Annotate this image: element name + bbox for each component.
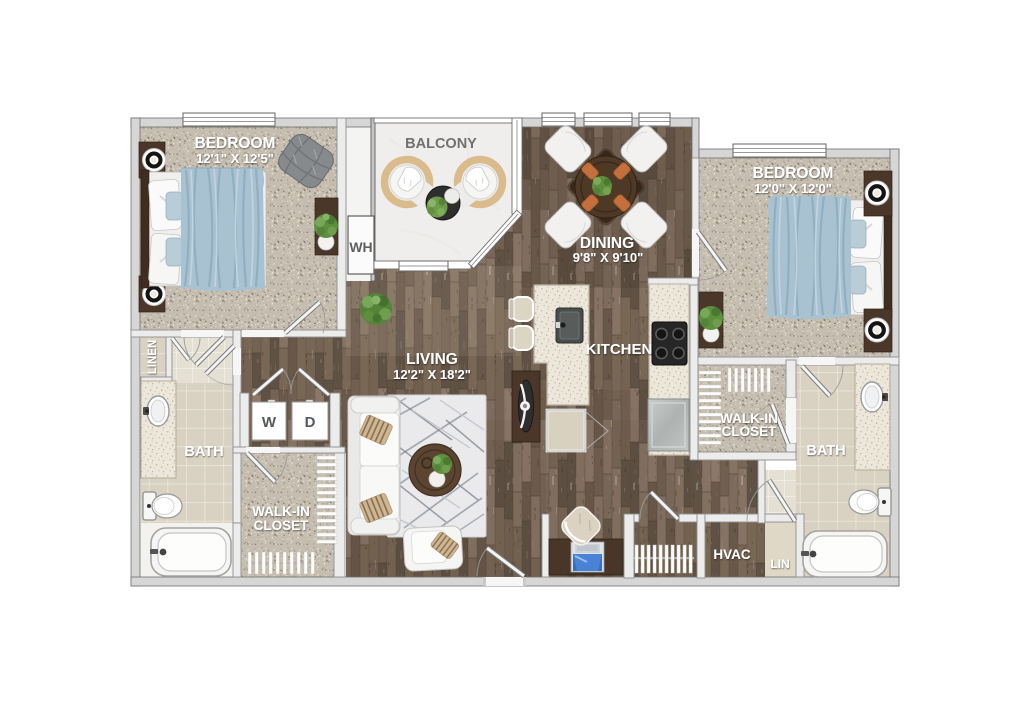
- svg-text:LINEN: LINEN: [147, 340, 159, 375]
- svg-text:12'1" X 12'5": 12'1" X 12'5": [196, 151, 274, 166]
- svg-text:BATH: BATH: [806, 443, 845, 459]
- svg-text:CLOSET: CLOSET: [254, 518, 310, 533]
- svg-text:LIN: LIN: [770, 557, 789, 571]
- svg-text:WALK-IN: WALK-IN: [252, 504, 310, 519]
- svg-text:12'0" X 12'0": 12'0" X 12'0": [754, 181, 832, 196]
- svg-text:HVAC: HVAC: [713, 547, 751, 562]
- svg-text:BATH: BATH: [184, 444, 223, 460]
- svg-text:BALCONY: BALCONY: [405, 136, 477, 152]
- svg-text:BEDROOM: BEDROOM: [753, 165, 834, 182]
- svg-text:12'2" X 18'2": 12'2" X 18'2": [393, 367, 471, 382]
- svg-text:BEDROOM: BEDROOM: [195, 135, 276, 152]
- svg-text:W: W: [262, 414, 277, 431]
- svg-text:CLOSET: CLOSET: [722, 424, 778, 439]
- svg-text:WH: WH: [349, 239, 372, 255]
- svg-text:LIVING: LIVING: [406, 351, 458, 368]
- svg-text:D: D: [305, 414, 316, 431]
- svg-text:KITCHEN: KITCHEN: [586, 341, 653, 358]
- svg-text:9'8" X 9'10": 9'8" X 9'10": [573, 250, 644, 265]
